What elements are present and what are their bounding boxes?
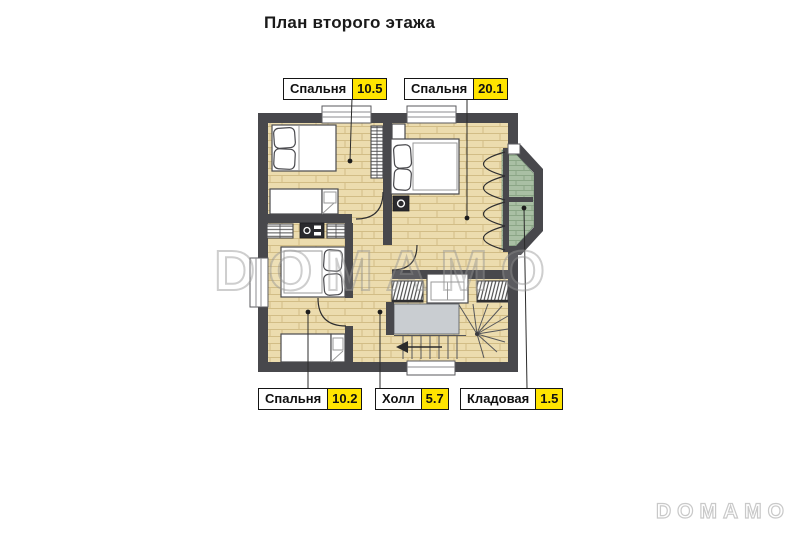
room-label-hall: Холл 5.7 <box>375 388 449 410</box>
room-label-bedroom-102: Спальня 10.2 <box>258 388 362 410</box>
railing-left <box>392 281 423 302</box>
wall-corridor-upper <box>345 223 353 298</box>
pillow <box>393 144 412 168</box>
floor-plan-drawing <box>0 0 800 533</box>
room-area-badge: 1.5 <box>535 389 562 409</box>
pillow <box>273 148 295 169</box>
room-area-badge: 10.2 <box>327 389 361 409</box>
wall-bottom <box>258 362 518 372</box>
wall-corridor-lower <box>345 326 353 362</box>
pillow <box>393 168 411 190</box>
room-name: Спальня <box>405 79 473 99</box>
window-bottom <box>407 361 455 375</box>
single-bed <box>270 189 322 214</box>
window-left <box>250 258 268 307</box>
bay-window-notch <box>508 144 520 154</box>
floor-plan-page: План второго этажа <box>0 0 800 533</box>
pillow <box>323 273 342 295</box>
room-label-closet: Кладовая 1.5 <box>460 388 563 410</box>
stair-landing <box>394 304 459 334</box>
railing-right <box>477 281 508 302</box>
room-label-bedroom-105: Спальня 10.5 <box>283 78 387 100</box>
room-area-badge: 20.1 <box>473 79 507 99</box>
winder-pivot <box>475 332 479 336</box>
room-name: Спальня <box>259 389 327 409</box>
sofa <box>427 274 468 303</box>
wall-left <box>258 113 268 372</box>
room-area-badge: 10.5 <box>352 79 386 99</box>
room-name: Кладовая <box>461 389 535 409</box>
wall-right-lower <box>508 248 518 372</box>
room-name: Спальня <box>284 79 352 99</box>
closet-divider <box>506 197 533 202</box>
room-area-badge: 5.7 <box>421 389 448 409</box>
single-bed <box>281 334 331 362</box>
pillow <box>273 127 295 148</box>
room-label-bedroom-201: Спальня 20.1 <box>404 78 508 100</box>
room-name: Холл <box>376 389 421 409</box>
wall-landing-stub <box>386 302 394 335</box>
window-top-right <box>407 106 456 123</box>
wall-bedroom-105-bottom <box>268 214 352 223</box>
pillow <box>323 249 342 271</box>
window-top-left <box>322 106 371 123</box>
bedside-table <box>393 196 409 211</box>
